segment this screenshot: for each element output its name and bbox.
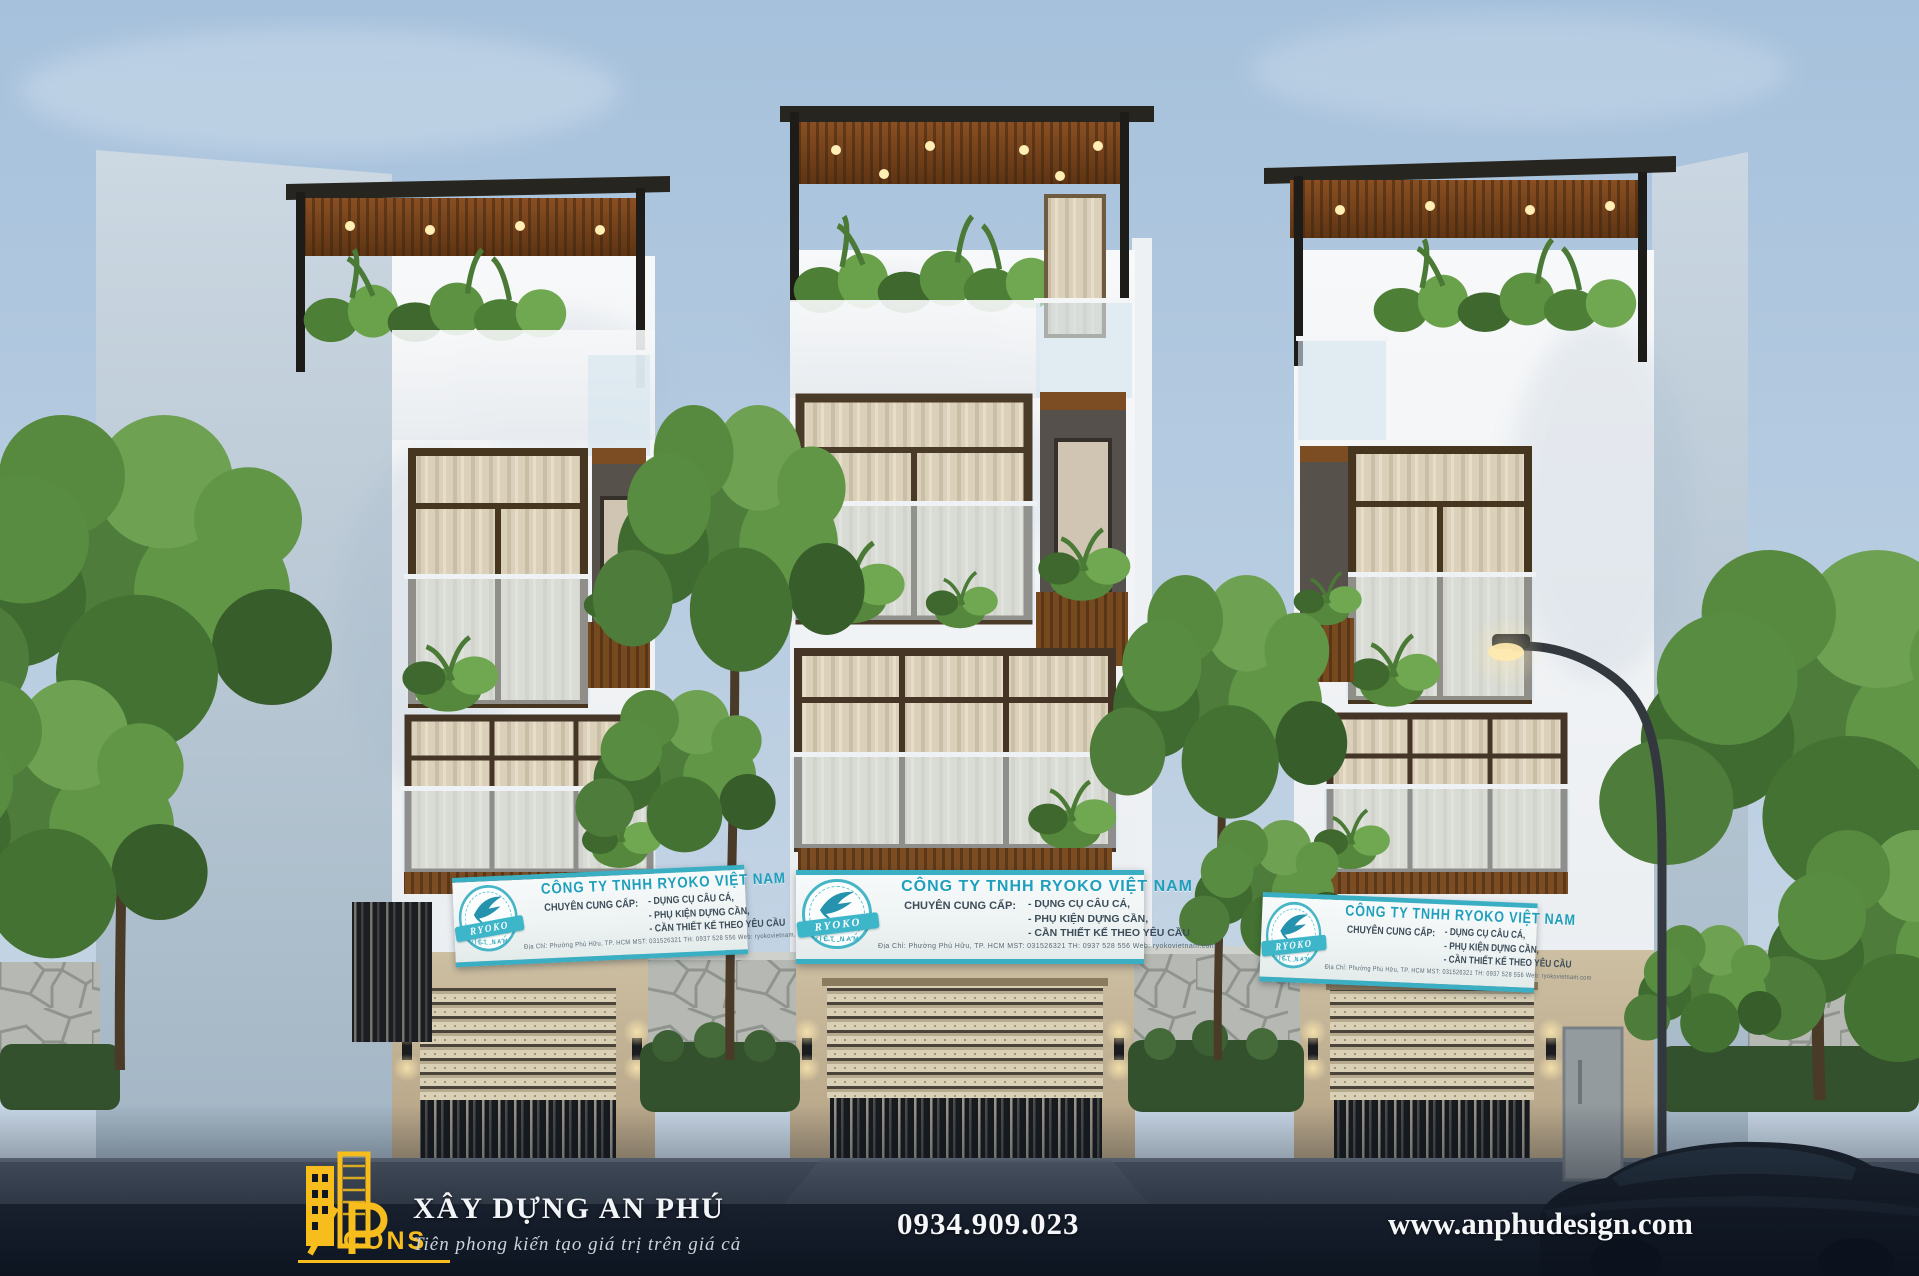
center-window-second-floor	[790, 652, 1120, 850]
right-window-second-floor	[1314, 716, 1572, 872]
ryoko-banner-left: RYOKO VIỆT NAM CÔNG TY TNHH RYOKO VIỆT N…	[452, 865, 748, 967]
banner-item: - PHỤ KIỆN DỰNG CẦN,	[1028, 912, 1190, 927]
banner-supply-label: CHUYÊN CUNG CẤP:	[1346, 924, 1436, 967]
company-tagline: Tiên phong kiến tạo giá trị trên giá cả	[413, 1234, 741, 1256]
center-garage-shutter	[827, 986, 1103, 1098]
banner-title: CÔNG TY TNHH RYOKO VIỆT NAM	[878, 878, 1216, 896]
scene-illustration	[0, 0, 1919, 1276]
banner-info-line: Địa Chỉ: Phường Phú Hữu, TP. HCM MST: 03…	[878, 943, 1216, 950]
ryoko-logo: RYOKO VIỆT NAM	[452, 880, 524, 963]
banner-supply-label: CHUYÊN CUNG CẤP:	[544, 898, 640, 941]
banner-supply-label: CHUYÊN CUNG CẤP:	[904, 900, 1016, 941]
banner-item: - DỤNG CỤ CÂU CÁ,	[1028, 897, 1190, 912]
footer-phone: 0934.909.023	[897, 1206, 1080, 1242]
left-window-third-floor	[402, 452, 592, 712]
ryoko-banner-center: RYOKO VIỆT NAM CÔNG TY TNHH RYOKO VIỆT N…	[796, 870, 1144, 964]
ryoko-logo: RYOKO VIỆT NAM	[1259, 897, 1327, 979]
banner-item: - CẦN THIẾT KẾ THEO YÊU CẦU	[1028, 926, 1190, 941]
center-building	[760, 106, 1154, 1190]
architectural-render: RYOKO VIỆT NAM CÔNG TY TNHH RYOKO VIỆT N…	[0, 0, 1919, 1276]
right-garage-shutter	[1330, 990, 1534, 1100]
dusk-overlay	[0, 1104, 1919, 1276]
apcons-logo-underline	[298, 1260, 450, 1263]
company-block: XÂY DỰNG AN PHÚ Tiên phong kiến tạo giá …	[413, 1192, 741, 1256]
ryoko-logo-sub: VIỆT NAM	[1260, 955, 1325, 964]
left-garage-shutter	[420, 988, 616, 1100]
company-name: XÂY DỰNG AN PHÚ	[413, 1192, 741, 1226]
ryoko-logo: RYOKO VIỆT NAM	[796, 875, 878, 959]
footer-website: www.anphudesign.com	[1388, 1206, 1693, 1242]
ryoko-banner-right: RYOKO VIỆT NAM CÔNG TY TNHH RYOKO VIỆT N…	[1259, 892, 1537, 993]
ryoko-logo-sub: VIỆT NAM	[796, 936, 878, 943]
